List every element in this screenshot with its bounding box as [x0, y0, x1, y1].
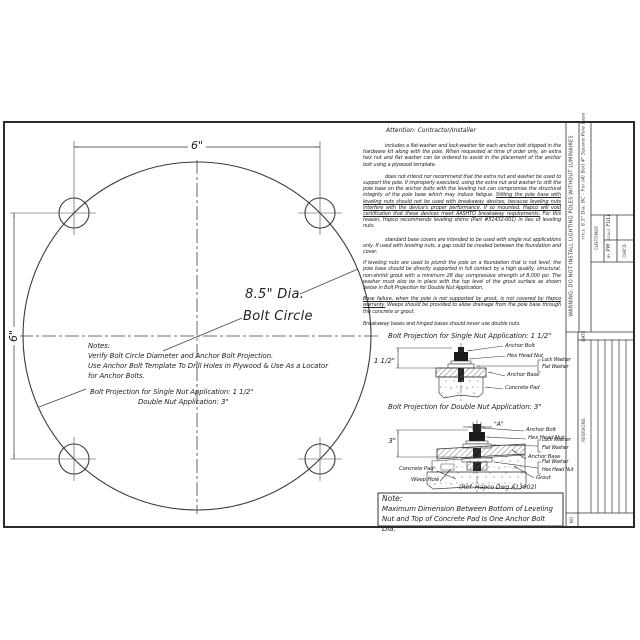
checked-label: CHK'D: [623, 244, 627, 258]
label-hex-head-nut: Hex Head Nut: [507, 353, 543, 359]
title-label: TITLE: [582, 229, 586, 239]
attention-paragraph-6: Breakaway bases and hinged bases should …: [363, 321, 561, 327]
revision-no-label: NO: [570, 517, 574, 524]
reference-drawing-label: (Ref. Hapco Dwg A13902): [459, 485, 537, 492]
notes-block: Notes: Verify Bolt Circle Diameter and A…: [88, 341, 328, 381]
double-nut-dim-a-label: "A": [494, 422, 504, 429]
note-box-body: Maximum Dimension Between Bottom of Leve…: [382, 504, 560, 534]
attention-paragraph-3: standard base covers are intended to be …: [363, 237, 561, 256]
notes-line: for Anchor Bolts.: [88, 371, 328, 381]
note-box-title: Note:: [382, 495, 402, 503]
by-row: BYPM: [607, 244, 613, 258]
attention-block: Attention: Contractor/Installer includes…: [363, 127, 561, 327]
attention-paragraph-2: does not intend nor recommend that the e…: [363, 174, 561, 230]
revisions-label: REVISIONS: [582, 418, 586, 441]
label-anchor-bolt: Anchor Bolt: [505, 343, 535, 349]
attention-heading: Attention: Contractor/Installer: [386, 127, 561, 134]
double-nut-dim-label: 3": [376, 438, 396, 446]
left-dimension-label: 6": [8, 327, 20, 345]
notes-projection-block: Bolt Projection for Single Nut Applicati…: [90, 387, 253, 407]
label-lock-washer: Lock Washer: [542, 438, 570, 444]
date-label: DATE: [582, 330, 586, 341]
bolt-circle-name-label: Bolt Circle: [243, 310, 313, 324]
label-flat-washer-lower: Flat Washer: [542, 460, 568, 466]
attention-paragraph-1: includes a flat-washer and lock-washer f…: [363, 143, 561, 168]
label-anchor-base: Anchor Base: [507, 372, 539, 378]
attention-p5-normal: Weeps should be provided to allow draina…: [363, 302, 561, 314]
label-concrete-pad: Concrete Pad: [399, 466, 433, 472]
scale-row: SCALEFULL: [607, 213, 613, 240]
label-concrete-pad: Concrete Pad: [505, 385, 539, 391]
label-flat-washer: Flat Washer: [542, 446, 568, 452]
notes-projection-double: Double Nut Application: 3": [90, 397, 253, 407]
top-dimension-label: 6": [188, 140, 206, 152]
by-label: BY: [607, 253, 611, 258]
by-value: PM: [606, 244, 612, 252]
double-nut-heading: Bolt Projection for Double Nut Applicati…: [388, 404, 541, 412]
single-nut-heading: Bolt Projection for Single Nut Applicati…: [388, 333, 551, 341]
drawing-title: TITLE8.5" Dia. BC - For (4) Bolt 4" Squa…: [583, 113, 588, 240]
scale-label: SCALE: [607, 228, 611, 240]
attention-paragraph-5: Base failure, when the pole is not suppo…: [363, 296, 561, 315]
title-value: 8.5" Dia. BC - For (4) Bolt 4" Square Po…: [582, 113, 587, 226]
label-hex-head-nut-lower: Hex Head Nut: [542, 468, 573, 474]
scale-value: FULL: [606, 213, 612, 226]
label-weep-hole: Weep Hole: [411, 477, 439, 483]
notes-projection-single: Bolt Projection for Single Nut Applicati…: [90, 387, 253, 397]
drawing-sheet: 6" 6" 8.5" Dia. Bolt Circle Notes: Verif…: [0, 0, 640, 640]
single-nut-dim-label: 1 1/2": [371, 358, 395, 366]
customer-label: CUSTOMER: [595, 226, 599, 250]
notes-title: Notes:: [88, 341, 328, 351]
label-flat-washer: Flat Washer: [542, 365, 568, 371]
label-lock-washer: Lock Washer: [542, 358, 570, 364]
notes-line: Use Anchor Bolt Template To Drill Holes …: [88, 361, 328, 371]
warning-text: WARNING: DO NOT INSTALL LIGHTING POLES W…: [569, 135, 575, 317]
bolt-circle-dia-label: 8.5" Dia.: [245, 288, 304, 302]
label-anchor-bolt: Anchor Bolt: [526, 427, 556, 433]
label-grout: Grout: [536, 475, 551, 481]
notes-line: Verify Bolt Circle Diameter and Anchor B…: [88, 351, 328, 361]
attention-paragraph-4: If leveling nuts are used to plumb the p…: [363, 260, 561, 291]
